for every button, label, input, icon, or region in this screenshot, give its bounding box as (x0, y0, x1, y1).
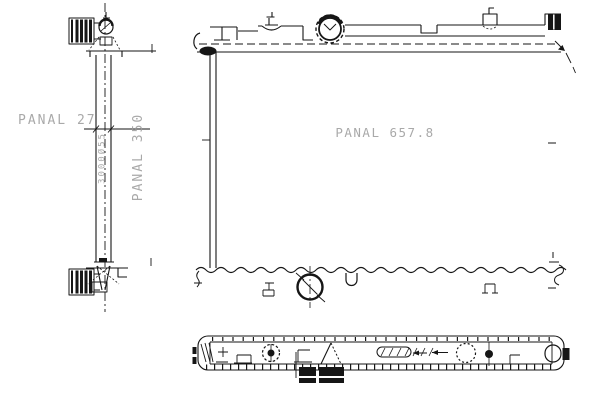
u-bracket-icon (346, 273, 357, 286)
bracket-icon-1 (234, 355, 252, 363)
front-top-tank (194, 8, 576, 73)
side-filler-cap-icon (99, 12, 113, 34)
right-pipe-stub (545, 14, 561, 31)
clip-icon-right (506, 355, 522, 364)
left-hook (194, 33, 200, 49)
front-view (194, 8, 576, 308)
drawing-canvas: PANAL 27 PANAL 350 PANAL 657.8 3000Ø55 (0, 0, 600, 400)
outlet-pipes-icon (299, 367, 344, 383)
radiator-drawing: PANAL 27 PANAL 350 PANAL 657.8 3000Ø55 (0, 0, 600, 400)
core-height-label: PANAL 350 (131, 113, 146, 201)
left-bracket (210, 27, 237, 40)
side-top-flange (86, 37, 156, 57)
triangle-bracket-icon (318, 343, 344, 364)
bottom-left-squiggle (194, 271, 202, 287)
bottom-tank-outline (198, 336, 564, 370)
cross-clip-icon (216, 347, 228, 362)
flow-arrow-icon (555, 41, 576, 73)
pin-icon (485, 342, 493, 366)
dotted-ring-icon (457, 344, 476, 363)
pi-bracket-icon (482, 284, 498, 293)
core-left-edge (202, 52, 216, 268)
cap-top-view-icon (263, 344, 280, 362)
top-bracket-icon (483, 8, 497, 29)
filler-cap-icon (316, 15, 344, 43)
core-width-label: PANAL 657.8 (335, 125, 434, 140)
bottom-tank-inner-lines (210, 342, 552, 364)
tube-marking-label: 3000Ø55 (97, 132, 108, 184)
core-depth-label: PANAL 27 (18, 113, 97, 128)
overflow-valve-icon (258, 12, 285, 30)
hatched-boss-icon (377, 347, 433, 357)
right-boss-icon (545, 345, 570, 362)
inlet-port-icon (200, 47, 217, 56)
core-bottom-wavy-line (196, 268, 566, 273)
bottom-view (193, 336, 570, 383)
bottom-clip-icon (263, 283, 274, 296)
side-bottom-outlet (86, 258, 151, 292)
